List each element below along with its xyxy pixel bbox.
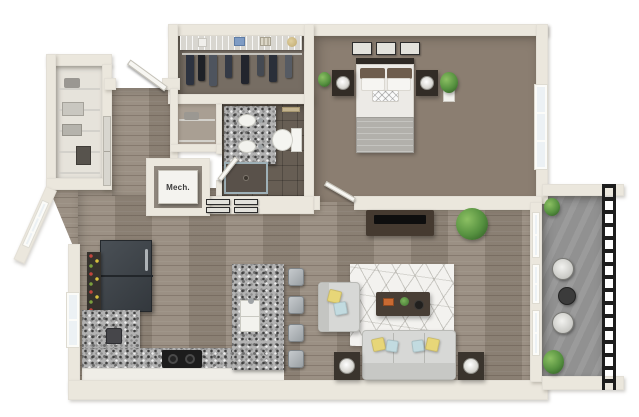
bar-stool	[288, 350, 304, 368]
wall-linen-south	[170, 144, 222, 152]
window-mullion	[29, 230, 35, 234]
window-mullion	[535, 112, 547, 114]
refrigerator	[100, 240, 152, 312]
island-sink	[240, 300, 260, 332]
burner	[185, 354, 195, 364]
window-mullion	[67, 319, 79, 321]
fridge-door-split	[101, 275, 153, 277]
bar-stool	[288, 324, 304, 342]
pantry-basket-1	[62, 102, 84, 116]
diagonal-window	[22, 200, 50, 249]
table-lamp	[463, 358, 479, 374]
sink-divider	[241, 316, 259, 317]
bedroom-wall-frame	[352, 42, 372, 55]
bedroom-floor	[314, 34, 536, 202]
nightstand-left	[332, 70, 354, 96]
vanity-faucet-1	[258, 118, 263, 123]
wine-rack	[87, 252, 101, 310]
wall-bath-west-upper	[216, 144, 222, 154]
bedroom-wall-frame	[376, 42, 396, 55]
linen-item	[184, 112, 199, 120]
pantry-door-split	[104, 151, 110, 152]
tv	[374, 215, 426, 224]
bistro-table	[558, 287, 576, 305]
throw-pillow-blue	[333, 301, 348, 316]
bed-blanket	[356, 117, 414, 153]
nightstand-right	[416, 70, 438, 96]
bedroom-plant-tall	[440, 72, 458, 93]
closet-box-blue	[234, 37, 245, 46]
hanging-clothes	[257, 55, 264, 76]
sink-faucet	[248, 298, 254, 304]
living-window-1	[532, 212, 540, 258]
hanging-clothes	[241, 55, 249, 84]
living-window-2	[532, 264, 540, 304]
wall-art-frame	[234, 199, 258, 205]
sofa-back	[363, 363, 455, 379]
mech-label: Mech.	[166, 183, 190, 192]
hanging-clothes	[225, 55, 232, 78]
hanging-clothes	[186, 55, 194, 85]
balcony-railing	[602, 184, 616, 390]
entry-door	[127, 60, 168, 92]
hanging-clothes	[209, 55, 217, 86]
hanging-clothes	[285, 55, 292, 78]
wall-art-frame	[206, 199, 230, 205]
window-mullion	[535, 140, 547, 142]
table-lamp	[339, 358, 355, 374]
window-mullion	[533, 234, 539, 236]
closet-box-white	[198, 38, 207, 47]
shower-drain	[243, 175, 249, 181]
window-mullion	[533, 283, 539, 285]
kitchen-window	[66, 292, 80, 348]
wall-art-frame	[234, 207, 258, 213]
balcony-plant-top	[544, 198, 560, 216]
side-table-right	[458, 352, 484, 380]
vanity-sink-2	[238, 140, 256, 153]
pantry-basket-2	[62, 124, 82, 136]
throw-pillow-yellow	[371, 337, 386, 352]
side-table-left	[334, 352, 360, 380]
vanity-faucet-2	[258, 144, 263, 149]
wall-top	[168, 24, 548, 36]
wall-living-north-right	[354, 196, 542, 210]
wall-bottom	[68, 380, 548, 400]
bistro-chair	[552, 312, 574, 334]
bed-accent-pillow	[372, 90, 399, 102]
wall-living-north-left	[314, 196, 320, 210]
bedside-lamp	[336, 76, 350, 90]
cooktop	[162, 350, 202, 368]
throw-pillow-yellow	[425, 337, 440, 352]
pantry-box-dark	[76, 146, 91, 165]
coffee-table	[376, 292, 430, 316]
floor-plan: Mech.	[0, 0, 639, 417]
bar-stool	[288, 296, 304, 314]
armchair-back	[319, 283, 329, 331]
burner	[168, 354, 178, 364]
table-bowl	[414, 300, 424, 310]
towel-bar	[282, 107, 300, 112]
hanging-clothes	[269, 55, 277, 82]
bed	[356, 64, 414, 152]
toilet-bowl	[272, 129, 293, 151]
balcony-door	[532, 310, 540, 356]
wall-diagonal	[13, 186, 57, 264]
window-mullion	[35, 216, 41, 220]
balcony-plant-bottom	[543, 350, 564, 374]
mech-unit: Mech.	[158, 170, 198, 204]
table-plant	[400, 297, 409, 306]
door-mullion	[533, 332, 539, 334]
wall-art-frame	[206, 207, 230, 213]
bar-stool	[288, 268, 304, 286]
living-corner-plant	[456, 208, 488, 240]
tv-console	[366, 210, 434, 236]
throw-pillow-blue	[385, 339, 399, 353]
bistro-chair	[552, 258, 574, 280]
vanity-sink-1	[238, 114, 256, 127]
bedroom-plant-small	[318, 72, 331, 87]
pantry-item	[64, 78, 80, 88]
closet-hat	[287, 37, 297, 47]
bedside-lamp	[420, 76, 434, 90]
closet-box-striped	[260, 37, 271, 46]
bedroom-window	[534, 84, 548, 170]
pantry-double-doors	[103, 116, 111, 186]
bedroom-wall-frame	[400, 42, 420, 55]
throw-pillow-blue	[411, 339, 425, 353]
coffee-maker	[106, 328, 122, 344]
hanging-clothes	[198, 55, 205, 81]
wall-bath-west-lower	[216, 180, 222, 196]
wall-entry-left	[104, 78, 116, 90]
books	[383, 298, 394, 306]
mech-closet: Mech.	[146, 158, 210, 216]
fridge-handle	[145, 249, 148, 271]
wall-closet-south	[168, 94, 314, 104]
wall-bedroom-west	[304, 24, 314, 204]
wall-pantry-west	[46, 54, 56, 190]
